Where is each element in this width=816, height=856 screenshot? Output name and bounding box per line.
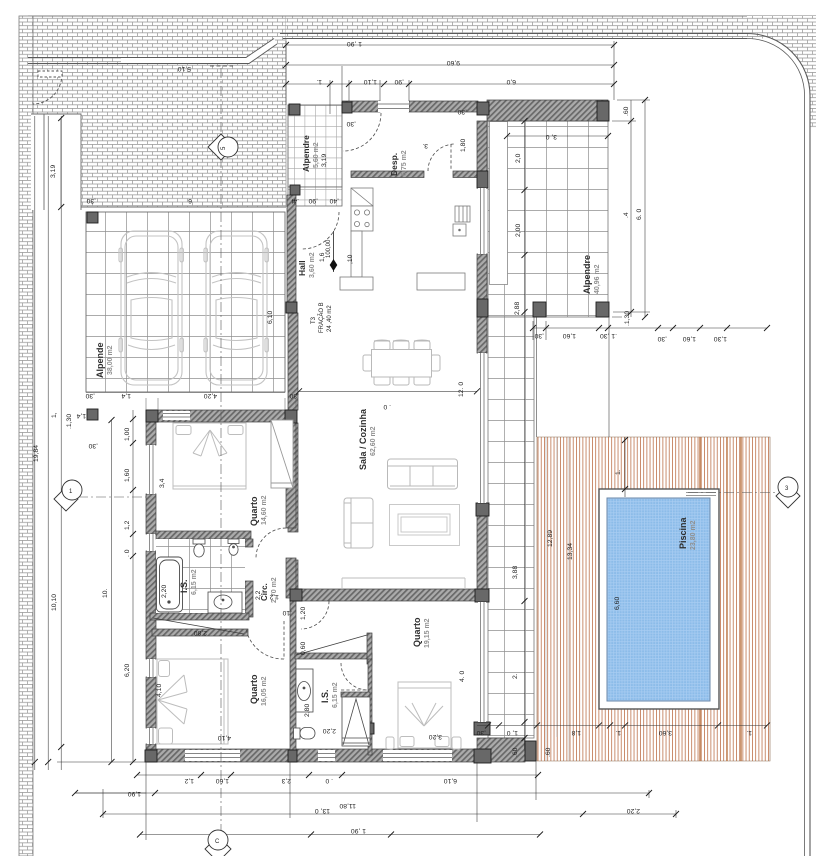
svg-text:2,3: 2,3 bbox=[281, 777, 291, 784]
svg-text:.4: .4 bbox=[291, 197, 297, 204]
svg-text:5,10: 5,10 bbox=[178, 65, 191, 72]
svg-text:1,: 1, bbox=[51, 412, 58, 418]
svg-text:2,80: 2,80 bbox=[194, 629, 207, 636]
svg-text:,40: ,40 bbox=[329, 197, 339, 204]
svg-text:1, 0: 1, 0 bbox=[506, 729, 518, 736]
svg-text:1.: 1. bbox=[746, 729, 752, 736]
svg-text:62,60 m2: 62,60 m2 bbox=[370, 426, 377, 456]
svg-text:1,20: 1,20 bbox=[300, 607, 307, 620]
svg-text:1 ,90: 1 ,90 bbox=[351, 827, 366, 834]
svg-text:1,4: 1,4 bbox=[121, 392, 131, 399]
svg-text:2,00: 2,00 bbox=[515, 224, 522, 237]
svg-text:C: C bbox=[215, 839, 220, 845]
svg-text:3.: 3. bbox=[422, 142, 428, 149]
svg-text:.60: .60 bbox=[545, 747, 552, 757]
svg-text:5,60 m2: 5,60 m2 bbox=[313, 142, 320, 168]
svg-text:6,75 m2: 6,75 m2 bbox=[401, 150, 408, 176]
svg-text:1 ,90: 1 ,90 bbox=[347, 40, 362, 47]
svg-text:,90: ,90 bbox=[308, 197, 318, 204]
svg-text:,30: ,30 bbox=[534, 332, 544, 339]
svg-text:6: 6 bbox=[188, 197, 192, 204]
svg-text:10,10: 10,10 bbox=[51, 594, 58, 611]
svg-text:6,10: 6,10 bbox=[267, 311, 274, 324]
svg-text:Quarto: Quarto bbox=[249, 496, 259, 526]
svg-text:I.S.: I.S. bbox=[179, 579, 189, 593]
svg-text:38,00 m2: 38,00 m2 bbox=[107, 345, 114, 375]
svg-text:6,20: 6,20 bbox=[124, 664, 131, 677]
svg-text:4,10: 4,10 bbox=[218, 734, 231, 741]
svg-text:2,80: 2,80 bbox=[304, 704, 311, 717]
svg-text:3,19: 3,19 bbox=[321, 154, 328, 167]
svg-text:6,10: 6,10 bbox=[444, 777, 457, 784]
svg-text:2,20: 2,20 bbox=[627, 807, 640, 814]
svg-text:1,80: 1,80 bbox=[460, 139, 467, 152]
svg-text:,30: ,30 bbox=[88, 442, 98, 449]
svg-text:13,34: 13,34 bbox=[567, 543, 574, 560]
svg-text:.1,30: .1,30 bbox=[624, 311, 631, 326]
svg-text:1,60: 1,60 bbox=[683, 335, 696, 342]
svg-text:0,60: 0,60 bbox=[300, 642, 307, 655]
svg-text:T3: T3 bbox=[311, 316, 317, 324]
svg-text:.1 ,30: .1 ,30 bbox=[600, 332, 617, 339]
svg-text:Sala / Cozinha: Sala / Cozinha bbox=[358, 408, 368, 470]
svg-text:6,60: 6,60 bbox=[614, 597, 621, 610]
svg-text:23,80 m2: 23,80 m2 bbox=[690, 520, 697, 550]
svg-text:3,88: 3,88 bbox=[512, 566, 519, 579]
svg-text:,90: ,90 bbox=[394, 78, 404, 85]
svg-text:1,2: 1,2 bbox=[184, 777, 194, 784]
svg-text:6,0: 6,0 bbox=[506, 78, 516, 85]
svg-text:FRAÇÃO B: FRAÇÃO B bbox=[318, 302, 325, 333]
svg-text:3,4: 3,4 bbox=[159, 478, 166, 488]
svg-text:6,15 m2: 6,15 m2 bbox=[191, 569, 198, 595]
svg-text:,30: ,30 bbox=[657, 335, 667, 342]
svg-text:10.: 10. bbox=[102, 588, 109, 598]
svg-text:1.: 1. bbox=[316, 78, 322, 85]
svg-text:,10: ,10 bbox=[282, 609, 292, 616]
svg-text:.60: .60 bbox=[512, 747, 519, 757]
svg-text:Piscina: Piscina bbox=[678, 516, 688, 549]
svg-text:Quarto: Quarto bbox=[249, 674, 259, 704]
svg-text:12,89: 12,89 bbox=[547, 530, 554, 547]
svg-text:2,20: 2,20 bbox=[323, 727, 336, 734]
svg-text:40,96 m2: 40,96 m2 bbox=[594, 264, 601, 294]
svg-text:9,60: 9,60 bbox=[447, 59, 460, 66]
svg-text:,30: ,30 bbox=[457, 108, 467, 115]
svg-text:1,60: 1,60 bbox=[563, 332, 576, 339]
svg-text:3,20: 3,20 bbox=[429, 733, 442, 740]
svg-text:1,2: 1,2 bbox=[124, 520, 131, 530]
svg-text:16,05 m2: 16,05 m2 bbox=[261, 676, 268, 706]
svg-text:Quarto: Quarto bbox=[412, 617, 422, 647]
svg-text:2,20: 2,20 bbox=[161, 585, 168, 598]
svg-text:Hall: Hall bbox=[297, 260, 307, 276]
svg-text:Alpende: Alpende bbox=[95, 342, 105, 378]
svg-text:,30: ,30 bbox=[85, 392, 95, 399]
svg-text:.1,4: .1,4 bbox=[76, 412, 88, 419]
svg-text:13, 0: 13, 0 bbox=[315, 807, 330, 814]
svg-text:1,8: 1,8 bbox=[571, 729, 581, 736]
svg-text:6. 0: 6. 0 bbox=[636, 208, 643, 220]
svg-text:19,84: 19,84 bbox=[33, 445, 40, 462]
svg-text:,30: ,30 bbox=[86, 197, 96, 204]
svg-text:4,20: 4,20 bbox=[204, 392, 217, 399]
svg-text:. 0: . 0 bbox=[325, 777, 333, 784]
svg-text:3,60: 3,60 bbox=[659, 729, 672, 736]
svg-text:I.S.: I.S. bbox=[320, 689, 330, 703]
svg-text:3,60 m2: 3,60 m2 bbox=[309, 252, 316, 278]
svg-text:2,88: 2,88 bbox=[514, 302, 521, 315]
svg-text:2,70 m2: 2,70 m2 bbox=[271, 577, 278, 603]
svg-text:1,60: 1,60 bbox=[124, 469, 131, 482]
svg-text:1,60: 1,60 bbox=[216, 777, 229, 784]
svg-text:100,00: 100,00 bbox=[326, 239, 332, 258]
svg-text:1.: 1. bbox=[615, 469, 622, 475]
svg-text:6,15 m2: 6,15 m2 bbox=[332, 682, 339, 708]
svg-text:4. 0: 4. 0 bbox=[459, 670, 466, 682]
svg-text:,10: ,10 bbox=[347, 254, 354, 264]
svg-text:Circ.: Circ. bbox=[260, 583, 269, 601]
svg-text:Alpendre: Alpendre bbox=[582, 255, 592, 294]
svg-text:2,0: 2,0 bbox=[515, 153, 522, 163]
svg-text:1,90: 1,90 bbox=[128, 790, 141, 797]
svg-text:1.: 1. bbox=[615, 729, 621, 736]
svg-text:14,60 m2: 14,60 m2 bbox=[261, 495, 268, 525]
svg-text:.4: .4 bbox=[623, 212, 630, 218]
svg-text:4,10: 4,10 bbox=[156, 684, 163, 697]
svg-text:Alpendre: Alpendre bbox=[301, 135, 311, 172]
svg-text:2.: 2. bbox=[512, 673, 519, 679]
svg-text:3,19: 3,19 bbox=[50, 165, 57, 178]
svg-text:3, 0: 3, 0 bbox=[545, 133, 557, 140]
svg-text:11,80: 11,80 bbox=[339, 802, 356, 809]
svg-text:1,30: 1,30 bbox=[714, 335, 727, 342]
svg-text:,30: ,30 bbox=[346, 120, 356, 127]
svg-text:.60: .60 bbox=[623, 106, 630, 116]
svg-text:1,6: 1,6 bbox=[319, 252, 326, 262]
svg-text:12. 0: 12. 0 bbox=[458, 382, 465, 397]
svg-text:1,00: 1,00 bbox=[124, 428, 131, 441]
svg-text:19,15 m2: 19,15 m2 bbox=[424, 618, 431, 648]
svg-text:,30: ,30 bbox=[476, 729, 486, 736]
svg-text:. 0: . 0 bbox=[383, 403, 391, 410]
svg-text:Desp.: Desp. bbox=[389, 153, 399, 176]
svg-text:1,10: 1,10 bbox=[364, 78, 377, 85]
svg-text:24 ,40 m2: 24 ,40 m2 bbox=[327, 305, 333, 332]
svg-text:.1,30: .1,30 bbox=[66, 414, 73, 429]
svg-text:. 0: . 0 bbox=[124, 549, 131, 557]
